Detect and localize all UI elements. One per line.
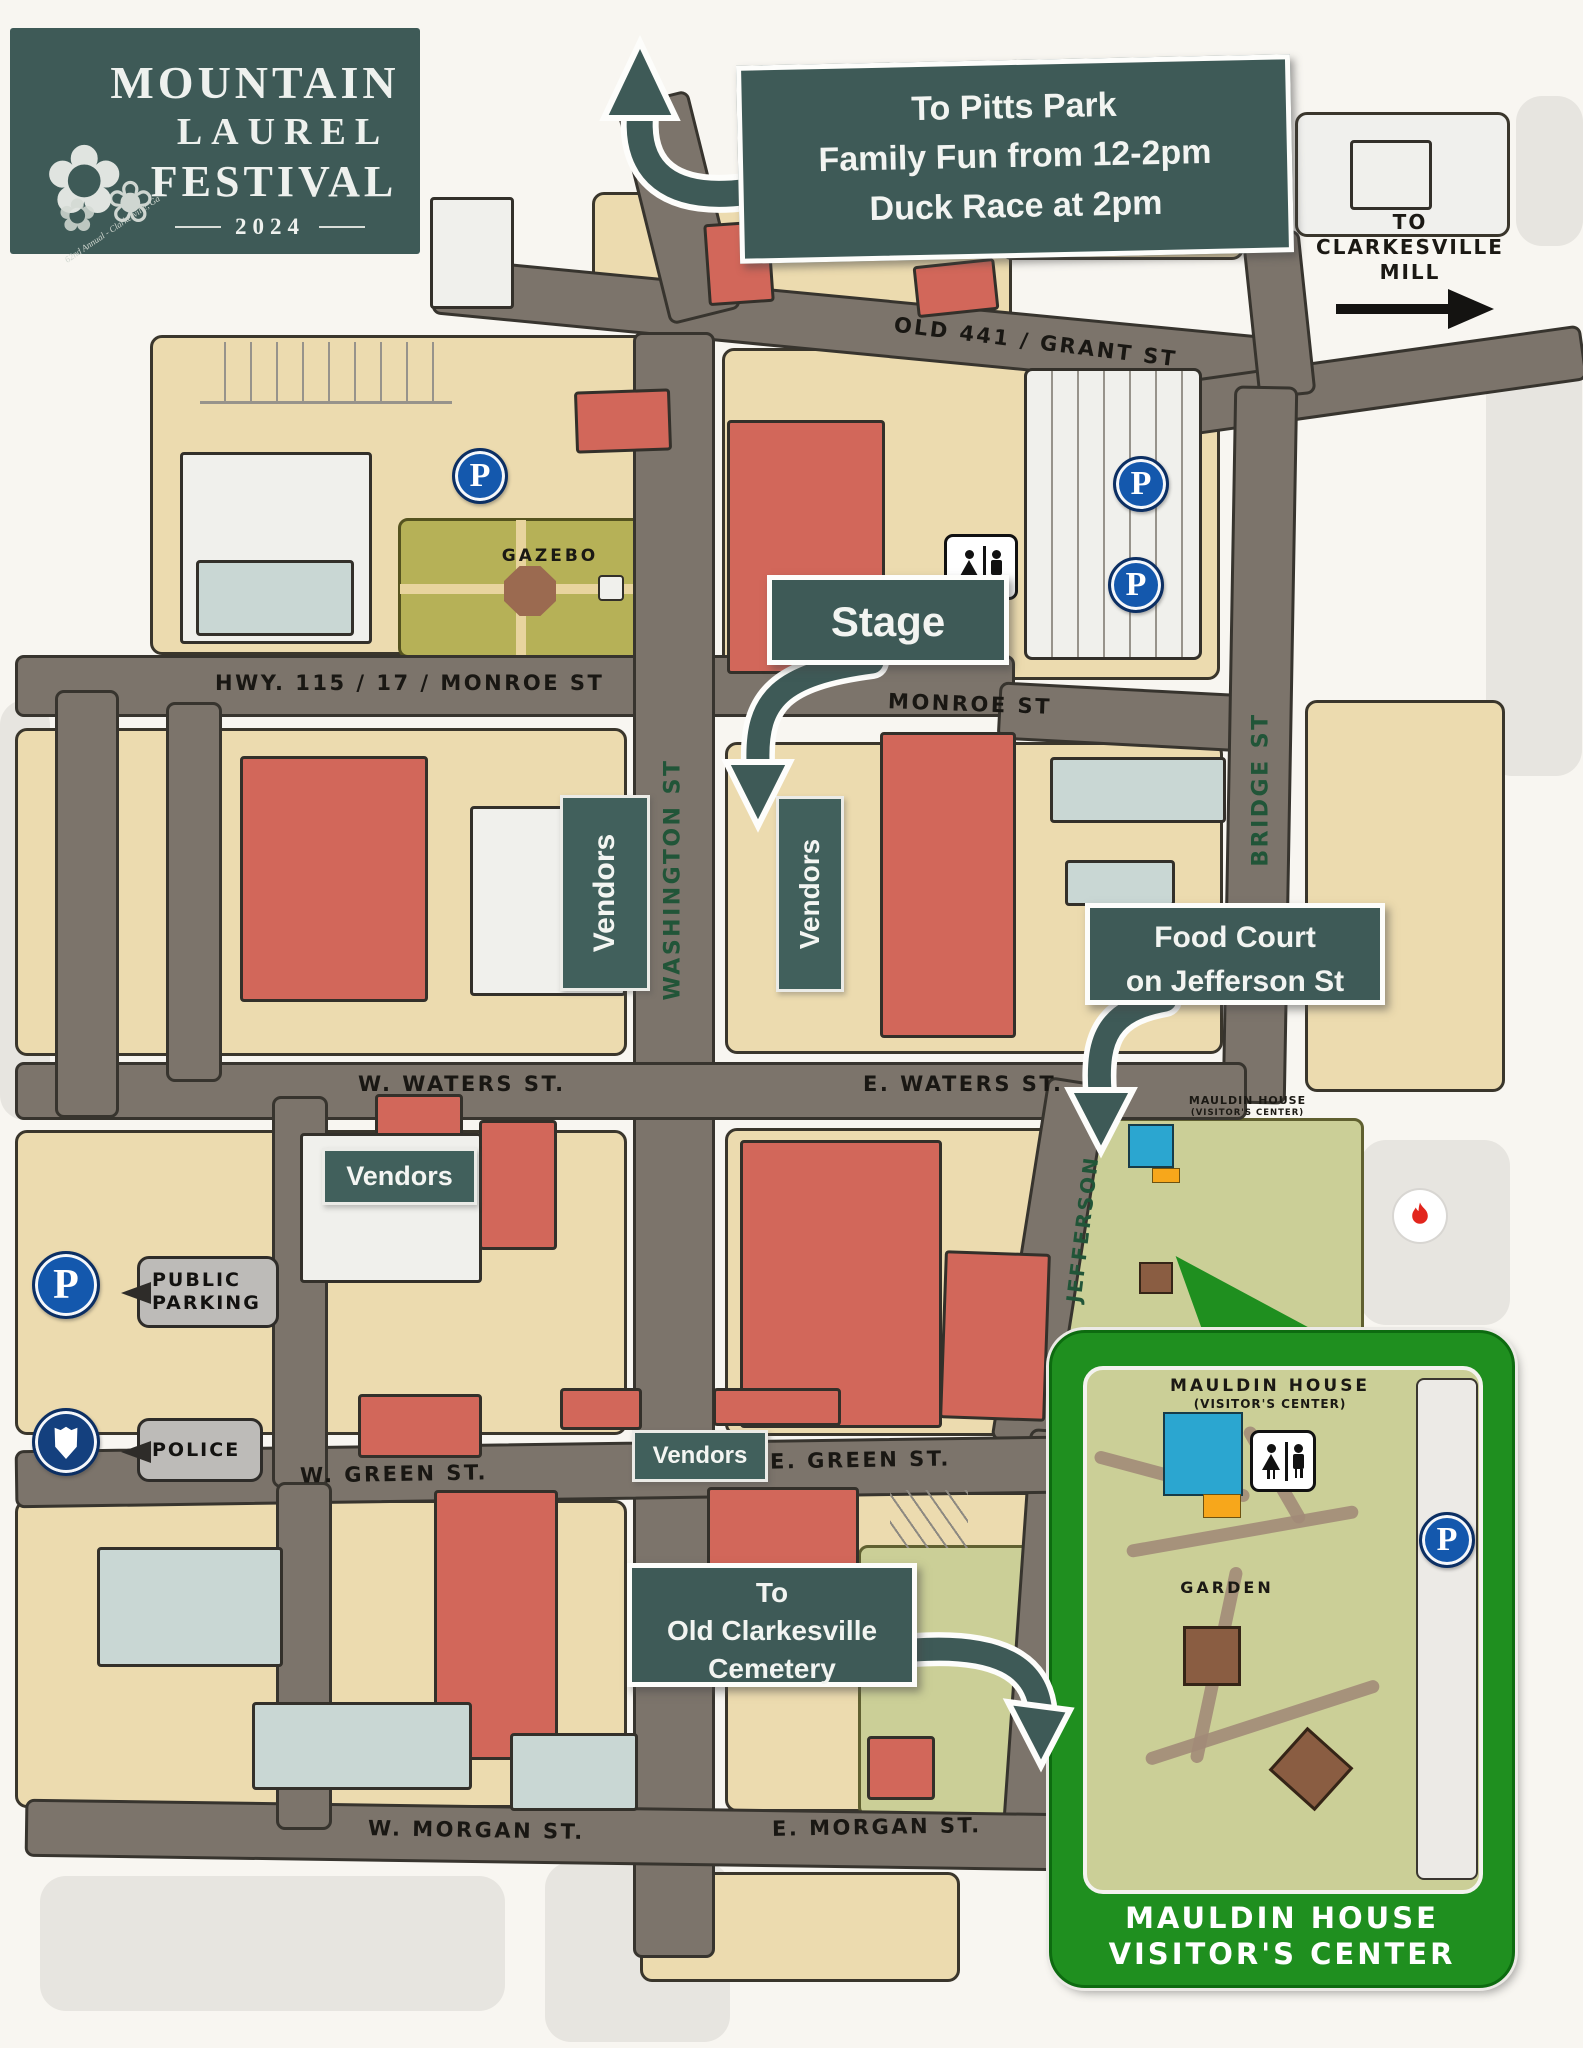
mauldin-annex — [1152, 1168, 1180, 1183]
mill-line3: MILL — [1310, 260, 1510, 285]
parking-icon: P — [1113, 456, 1169, 512]
building — [196, 560, 354, 636]
building — [510, 1733, 638, 1811]
parking-lot — [200, 342, 452, 404]
inset-label-line2: (VISITOR'S CENTER) — [1100, 1397, 1440, 1412]
building — [867, 1736, 935, 1800]
restroom-divider — [1285, 1442, 1288, 1481]
mill-line1: TO — [1310, 210, 1510, 235]
building — [880, 732, 1016, 1038]
park-structure — [598, 575, 624, 601]
cemetery-callout: To Old Clarkesville Cemetery — [627, 1563, 917, 1687]
parking-letter: P — [1437, 1521, 1458, 1559]
inset-parking-icon: P — [1419, 1512, 1475, 1568]
city-block — [1305, 700, 1505, 1092]
inset-garden-plot — [1183, 1626, 1241, 1686]
stage-label: Stage — [831, 598, 945, 645]
inset-caption-line2: VISITOR'S CENTER — [1060, 1936, 1504, 1972]
street-label-e-green: E. GREEN ST. — [770, 1446, 951, 1473]
mauldin-house-building — [1128, 1124, 1174, 1168]
legend-parking-icon: P — [32, 1251, 100, 1319]
food-court-line1: Food Court — [1090, 916, 1380, 960]
building — [252, 1702, 472, 1790]
food-court-line2: on Jefferson St — [1090, 960, 1380, 1004]
logo-line2: LAUREL — [158, 110, 408, 154]
legend-police-bubble: POLICE — [137, 1418, 263, 1482]
festival-map: GAZEBO OLD 441 / GRANT ST HWY. 115 / 17 … — [0, 0, 1583, 2048]
vendors-zone-washington-east: Vendors — [776, 796, 844, 992]
parking-icon: P — [1108, 557, 1164, 613]
vendors-zone-washington-west: Vendors — [560, 795, 650, 991]
logo-line3: FESTIVAL — [138, 156, 410, 207]
vendors-zone-green: Vendors — [632, 1430, 768, 1482]
street-label-e-morgan: E. MORGAN ST. — [772, 1813, 982, 1841]
female-figure — [1262, 1444, 1280, 1479]
cemetery-line1: To — [632, 1574, 912, 1612]
vendors-label: Vendors — [794, 839, 826, 949]
inset-label-line1: MAULDIN HOUSE — [1100, 1376, 1440, 1397]
inset-caption: MAULDIN HOUSE VISITOR'S CENTER — [1060, 1900, 1504, 1973]
logo-year: 2024 — [130, 214, 410, 240]
parking-lot — [890, 1490, 968, 1548]
building — [560, 1388, 642, 1430]
street-label-w-green: W. GREEN ST. — [300, 1460, 488, 1487]
food-court-callout: Food Court on Jefferson St — [1085, 903, 1385, 1005]
street-label-w-morgan: W. MORGAN ST. — [368, 1816, 585, 1844]
street-label-bridge: BRIDGE ST — [1249, 705, 1274, 875]
vendors-label: Vendors — [653, 1442, 748, 1470]
cemetery-line3: Cemetery — [632, 1650, 912, 1688]
parking-icon: P — [452, 448, 508, 504]
building — [574, 388, 672, 453]
laurel-flower-icon: ✿ — [58, 188, 97, 242]
building — [713, 1388, 841, 1426]
street-label-hwy-monroe: HWY. 115 / 17 / MONROE ST — [215, 671, 604, 695]
road-washington-st — [633, 332, 715, 1958]
inset-mauldin-house — [1163, 1412, 1243, 1496]
inset-caption-line1: MAULDIN HOUSE — [1060, 1900, 1504, 1936]
festival-logo: ✿ ❀ ✿ MOUNTAIN LAUREL FESTIVAL 2024 62nd… — [10, 28, 420, 254]
vendors-label: Vendors — [346, 1161, 453, 1192]
paper-texture — [40, 1876, 505, 2011]
inset-mauldin-annex — [1203, 1494, 1241, 1518]
legend-police-label: POLICE — [152, 1439, 248, 1462]
building — [479, 1120, 557, 1250]
stage-callout: Stage — [767, 575, 1009, 665]
parking-letter: P — [1131, 465, 1152, 503]
building — [1350, 140, 1432, 210]
legend-parking-line2: PARKING — [152, 1292, 264, 1315]
street-label-washington: WASHINGTON ST — [661, 750, 686, 1010]
mill-line2: CLARKESVILLE — [1310, 235, 1510, 260]
road-side-street — [166, 702, 222, 1082]
inset-parking-lot — [1416, 1378, 1478, 1880]
building — [240, 756, 428, 1002]
garden-plot — [1139, 1262, 1173, 1294]
cemetery-line2: Old Clarkesville — [632, 1612, 912, 1650]
fire-icon — [1394, 1190, 1446, 1242]
mauldin-map-line2: (VISITOR'S CENTER) — [1160, 1108, 1335, 1119]
pitts-park-callout: To Pitts Park Family Fun from 12-2pm Duc… — [736, 54, 1294, 264]
male-figure — [1293, 1444, 1304, 1478]
mauldin-house-map-label: MAULDIN HOUSE (VISITOR'S CENTER) — [1160, 1094, 1335, 1118]
building — [430, 197, 514, 309]
legend-parking-bubble: PUBLIC PARKING — [137, 1256, 279, 1328]
street-label-w-waters: W. WATERS ST. — [358, 1072, 566, 1096]
parking-lot — [1024, 368, 1202, 660]
garden-label: GARDEN — [1162, 1578, 1292, 1598]
building — [358, 1394, 482, 1458]
vendors-label: Vendors — [588, 834, 622, 952]
building — [913, 258, 1000, 318]
inset-restroom-icon — [1250, 1430, 1316, 1492]
vendors-zone-waters: Vendors — [322, 1148, 477, 1205]
building — [939, 1250, 1051, 1422]
building — [1065, 860, 1175, 906]
road-west-side — [55, 690, 119, 1118]
mill-right-arrow-icon — [1336, 289, 1494, 329]
parking-letter: P — [1126, 566, 1147, 604]
street-label-e-waters: E. WATERS ST. — [863, 1072, 1064, 1096]
logo-year-text: 2024 — [235, 214, 305, 240]
parking-letter: P — [53, 1261, 79, 1309]
legend-parking-line1: PUBLIC — [152, 1269, 264, 1292]
mill-direction-label: TO CLARKESVILLE MILL — [1310, 210, 1510, 285]
inset-mauldin-label: MAULDIN HOUSE (VISITOR'S CENTER) — [1100, 1376, 1440, 1412]
building — [740, 1140, 942, 1428]
paper-texture — [1516, 96, 1583, 246]
logo-line1: MOUNTAIN — [102, 56, 408, 109]
building — [97, 1547, 283, 1667]
building — [1050, 757, 1226, 823]
mauldin-map-line1: MAULDIN HOUSE — [1160, 1094, 1335, 1108]
police-shield-icon — [51, 1425, 81, 1459]
parking-letter: P — [470, 457, 491, 495]
gazebo-label: GAZEBO — [480, 546, 620, 567]
legend-police-icon — [32, 1408, 100, 1476]
